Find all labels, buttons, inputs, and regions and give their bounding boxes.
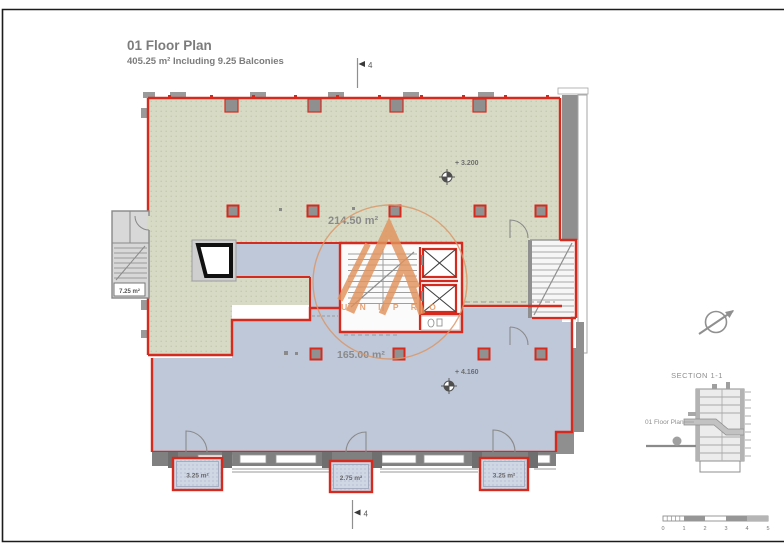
core-wc: [421, 316, 460, 330]
section-cut-arrow-icon: [359, 61, 366, 67]
upper-area-label: 214.50 m²: [328, 215, 378, 227]
watermark-text: U N I P R O: [341, 302, 441, 312]
scale-tick: 0: [661, 526, 664, 532]
scale-tick: 5: [766, 526, 769, 532]
annex-door-gap: [147, 216, 151, 230]
balcony-3: 3.25 m²: [480, 458, 528, 490]
balcony-area-label: 3.25 m²: [186, 473, 209, 480]
section-cut-label-top: 4: [368, 61, 373, 70]
lower-area-label: 165.00 m²: [337, 349, 385, 361]
scale-bar: 0 1 2 3 4 5: [661, 516, 769, 532]
balcony-area-label: 3.25 m²: [493, 473, 516, 480]
section-cut-marker-bottom: 4: [353, 500, 369, 529]
section-cut-arrow-icon: [354, 510, 361, 516]
page-title: 01 Floor Plan: [127, 38, 212, 53]
left-annex-stair: 7.25 m²: [112, 211, 151, 298]
balcony-1: 3.25 m²: [173, 458, 222, 490]
section-cut-label-bottom: 4: [364, 510, 369, 519]
scale-tick: 2: [703, 526, 706, 532]
tree-icon: [673, 437, 682, 446]
elevator-shaft-1: [421, 249, 457, 277]
section-floor-label: 01 Floor Plan: [645, 419, 684, 426]
section-cut-marker-top: 4: [358, 58, 374, 88]
elevation-label: + 3.200: [455, 160, 479, 167]
balcony-area-label: 2.75 m²: [340, 475, 363, 482]
title-block: 01 Floor Plan 405.25 m² Including 9.25 B…: [127, 38, 284, 67]
scale-tick: 4: [745, 526, 748, 532]
drawing-sheet: 01 Floor Plan 405.25 m² Including 9.25 B…: [0, 0, 784, 549]
balcony-2: 2.75 m²: [330, 461, 372, 492]
corridor: [232, 243, 340, 277]
scale-tick: 3: [724, 526, 727, 532]
north-arrow-icon: [699, 310, 734, 334]
section-drawing: 01 Floor Plan: [645, 382, 751, 472]
shaft-room: [192, 240, 236, 281]
section-title: SECTION 1-1: [671, 371, 723, 380]
scale-tick: 1: [682, 526, 685, 532]
floor-plan-drawing: 01 Floor Plan 405.25 m² Including 9.25 B…: [0, 0, 784, 549]
annex-area-label: 7.25 m²: [119, 288, 140, 295]
elevation-label: + 4.160: [455, 369, 479, 376]
page-subtitle: 405.25 m² Including 9.25 Balconies: [127, 56, 284, 67]
